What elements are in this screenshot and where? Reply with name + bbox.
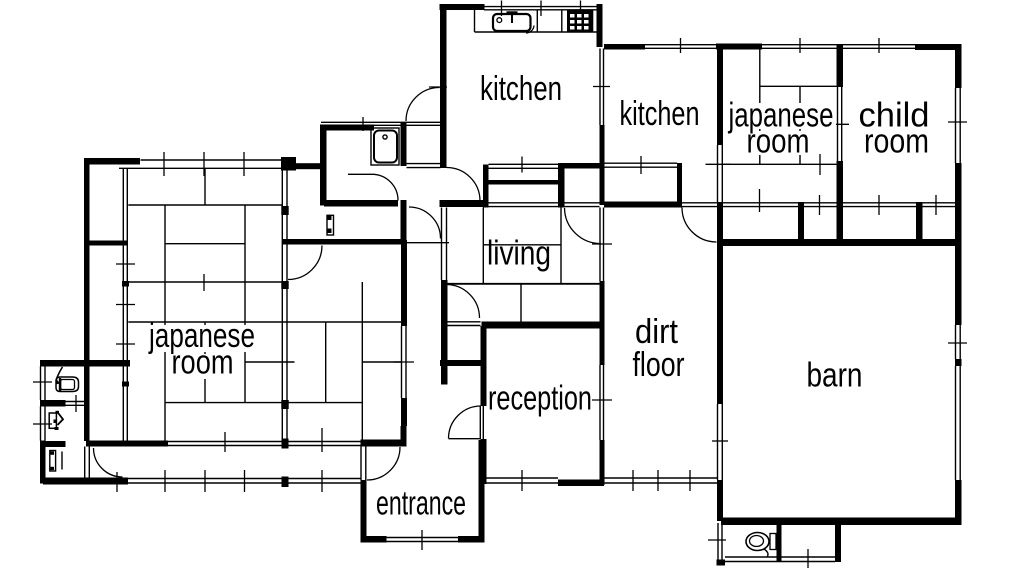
svg-text:barn: barn [807, 357, 863, 395]
svg-text:room: room [864, 123, 929, 161]
svg-text:kitchen: kitchen [620, 95, 700, 133]
svg-text:reception: reception [488, 380, 592, 418]
svg-text:living: living [487, 235, 551, 273]
svg-text:entrance: entrance [376, 485, 466, 523]
svg-text:kitchen: kitchen [480, 70, 562, 108]
svg-text:room: room [172, 344, 234, 382]
svg-text:floor: floor [633, 346, 685, 384]
svg-text:room: room [747, 123, 810, 161]
